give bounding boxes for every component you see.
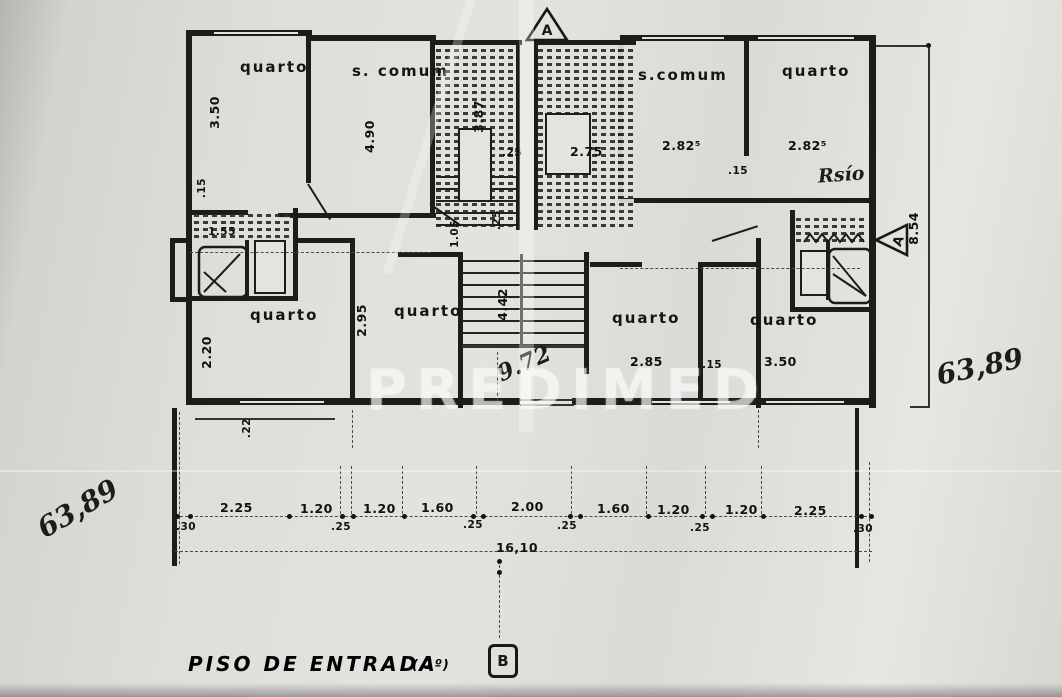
dashed-extension-line (705, 466, 706, 514)
dashed-extension-line (646, 466, 647, 514)
dashed-line (175, 516, 872, 517)
handwritten-note-rsio: Rsío (817, 162, 865, 187)
room-label-quarto-mid-center: quarto (394, 302, 462, 320)
dashed-extension-line (476, 466, 477, 514)
fixture-box (458, 128, 492, 202)
tick-dot (859, 514, 864, 519)
dashed-extension-line (758, 410, 759, 448)
wall-segment (790, 210, 795, 312)
wall-segment (744, 40, 749, 156)
thin-line (876, 45, 928, 47)
thin-line (928, 45, 930, 408)
dim-stair-length: 4.42 (495, 288, 510, 321)
handwritten-left-total: 63,89 (32, 472, 124, 544)
chain-dim: 1.60 (597, 501, 630, 516)
window (214, 32, 298, 34)
dim-wc-width: 1.55 (208, 226, 236, 238)
chain-dim: .25 (557, 520, 577, 532)
room-label-s-comum-left: s. comum (352, 62, 449, 80)
wall-segment (293, 208, 298, 301)
dim-hall-wall-25: .25 (491, 210, 503, 230)
dim-wall-15-mid: .15 (702, 359, 722, 371)
wall-segment (170, 238, 175, 302)
wall-segment (620, 198, 876, 203)
tick-dot (287, 514, 292, 519)
wall-segment (584, 252, 589, 374)
chain-dim: .25 (690, 522, 710, 534)
chain-dim: 1.20 (363, 501, 396, 516)
section-marker-a-top: A (524, 6, 570, 44)
dashed-extension-line (351, 466, 352, 514)
room-label-quarto-top-left: quarto (240, 58, 308, 76)
section-marker-b-bottom: B (488, 644, 518, 678)
dim-quarto-tl-width: 3.50 (207, 96, 222, 129)
wall-segment (298, 238, 354, 243)
dim-building-depth: 8.54 (906, 212, 921, 245)
tick-dot (578, 514, 583, 519)
chain-dim: .25 (331, 521, 351, 533)
dim-quarto-ml-depth: 2.20 (199, 336, 214, 369)
thin-line (910, 406, 930, 408)
wall-segment (172, 408, 177, 566)
scan-shadow-bottom (0, 683, 1062, 697)
dashed-extension-line (179, 412, 180, 564)
tick-dot (351, 514, 356, 519)
thin-line (520, 399, 574, 401)
tick-dot (340, 514, 345, 519)
tick-dot (761, 514, 766, 519)
dim-ledge-22: .22 (241, 418, 253, 438)
room-label-quarto-mid-left: quarto (250, 306, 318, 324)
window (652, 401, 730, 403)
thin-line (195, 418, 335, 420)
chain-dim: 2.25 (220, 500, 253, 515)
tick-dot (188, 514, 193, 519)
tick-dot (710, 514, 715, 519)
tick-dot (869, 514, 874, 519)
room-label-quarto-mid-far-right: quarto (750, 311, 818, 329)
dim-gap-25-top: .25 (502, 147, 522, 159)
room-label-s-comum-right: s.comum (638, 66, 728, 84)
dim-wall-15-right: .15 (728, 165, 748, 177)
dim-hall-depth: 1.05 (449, 220, 461, 248)
dim-quarto-mc-width: 2.95 (354, 304, 369, 337)
scanned-floor-plan: A A B quarto s. comum s.comum quarto qua… (0, 0, 1062, 697)
dashed-extension-line (352, 410, 353, 448)
chain-dim: .30 (853, 523, 873, 535)
wall-segment (186, 398, 520, 405)
tick-dot (646, 514, 651, 519)
dim-s-comum-l-width: 4.90 (362, 120, 377, 153)
wall-segment (306, 35, 436, 41)
tick-dot (402, 514, 407, 519)
wall-segment (278, 213, 436, 218)
thin-line (462, 345, 584, 348)
tick-dot (497, 559, 502, 564)
chain-dim: 1.20 (725, 502, 758, 517)
wall-segment (516, 40, 520, 230)
shower-right-icon (826, 246, 874, 306)
dim-quarto-tr-width: 2.82⁵ (788, 138, 827, 153)
room-label-quarto-top-right: quarto (782, 62, 850, 80)
dim-terrace-c-width: 2.75 (570, 144, 603, 159)
chain-total: 16,10 (496, 540, 538, 555)
chain-dim: 2.25 (794, 503, 827, 518)
fixture-box (254, 240, 286, 294)
plan-title-suffix: ( 1º) (412, 658, 450, 673)
chain-dim: 1.20 (300, 501, 333, 516)
dashed-line (620, 268, 860, 269)
window (642, 37, 724, 39)
scan-fold-horizontal (0, 470, 1062, 472)
thin-line (520, 404, 574, 406)
chain-dim: 1.60 (421, 500, 454, 515)
thin-line (520, 254, 523, 346)
room-label-quarto-mid-right: quarto (612, 309, 680, 327)
tick-dot (175, 514, 180, 519)
wall-segment (590, 262, 642, 267)
dim-s-comum-r-width: 2.82⁵ (662, 138, 701, 153)
dashed-extension-line (402, 466, 403, 514)
window (240, 401, 324, 403)
zigzag-coil-icon (804, 232, 866, 246)
dim-quarto-mr-width: 2.85 (630, 354, 663, 369)
chain-dim: 1.20 (657, 502, 690, 517)
door-leaf (712, 225, 758, 242)
window (766, 401, 844, 403)
chain-dim: .30 (176, 521, 196, 533)
chain-dim: .25 (463, 519, 483, 531)
tick-dot (700, 514, 705, 519)
dashed-extension-line (571, 466, 572, 514)
shower-left-icon (196, 244, 250, 300)
wall-segment (700, 262, 758, 267)
wall-segment (170, 297, 190, 302)
dashed-extension-line (761, 466, 762, 514)
chain-dim: 2.00 (511, 499, 544, 514)
wall-segment (698, 262, 703, 398)
wall-segment (186, 30, 192, 405)
stair-treads (462, 254, 584, 346)
dashed-extension-line (869, 462, 870, 562)
dim-quarto-fr-width: 3.50 (764, 354, 797, 369)
plan-title: PISO DE ENTRADA (188, 652, 438, 676)
svg-text:A: A (542, 23, 553, 39)
dim-wall-15-left: .15 (196, 178, 208, 198)
dim-terrace-l-depth: 3.87 (471, 100, 486, 133)
window (758, 37, 854, 39)
fixture-box (800, 250, 828, 296)
tick-dot (926, 43, 931, 48)
handwritten-right-total: 63,89 (934, 341, 1027, 392)
tick-dot (497, 570, 502, 575)
dashed-extension-line (340, 466, 341, 514)
tick-dot (568, 514, 573, 519)
wall-segment (855, 408, 859, 568)
